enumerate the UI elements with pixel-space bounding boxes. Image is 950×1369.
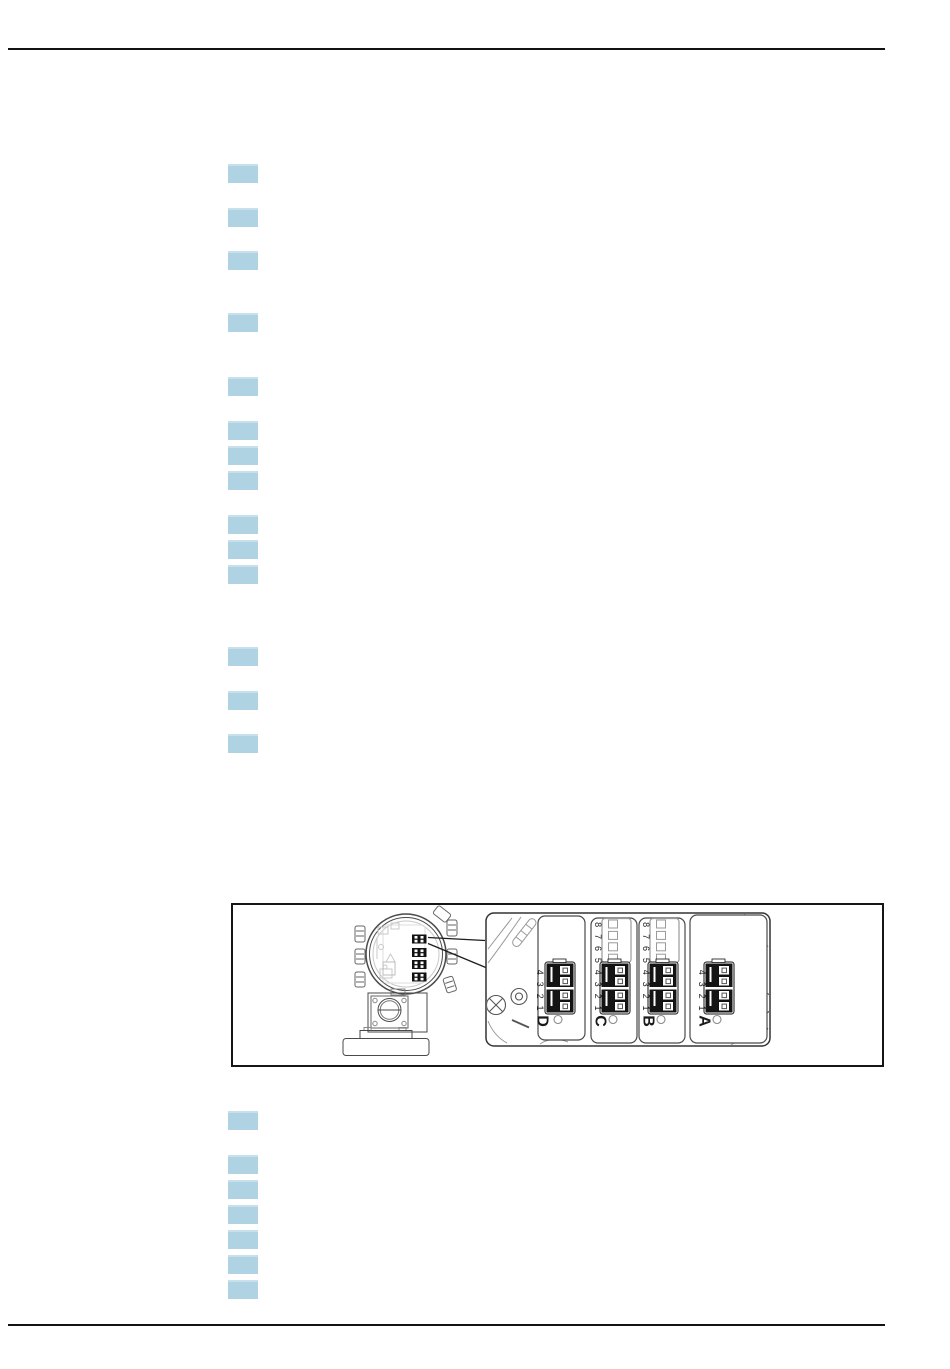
pin-number: 4 <box>697 970 707 975</box>
pin-number: 7 <box>641 934 651 939</box>
pin-number: 1 <box>697 1005 707 1010</box>
pin-number: 8 <box>641 922 651 927</box>
contact-window <box>560 1002 571 1012</box>
connector-split <box>547 987 574 990</box>
terminal-assignment-figure: 1234D12345678C12345678B1234A <box>231 903 884 1067</box>
section-label: A <box>696 1015 713 1027</box>
clamp-slot <box>710 967 712 982</box>
redacted-step-highlight <box>228 1155 258 1174</box>
pin-number: 2 <box>535 994 545 999</box>
pin-number: 1 <box>641 1005 651 1010</box>
pin-number: 6 <box>641 946 651 951</box>
contact-window <box>560 977 571 987</box>
connector-split <box>650 987 677 990</box>
socket-window <box>657 931 666 939</box>
housing-outer-circle <box>366 914 446 994</box>
contact-window <box>560 991 571 1001</box>
connector-split <box>602 987 629 990</box>
connector-split <box>706 987 733 990</box>
mini-connector-3 <box>412 960 427 969</box>
redacted-step-highlight <box>228 734 258 753</box>
contact-window <box>663 977 674 987</box>
terminal-section-B: 12345678B <box>639 918 685 1043</box>
manual-page: 1234D12345678C12345678B1234A <box>0 0 950 1369</box>
pin-number: 2 <box>697 994 707 999</box>
redacted-step-highlight <box>228 446 258 465</box>
redacted-step-highlight <box>228 540 258 559</box>
redacted-step-highlight <box>228 1255 258 1274</box>
mini-connector-1 <box>412 935 427 944</box>
redacted-step-highlight <box>228 1280 258 1299</box>
clamp-slot <box>551 991 553 1006</box>
contact-window <box>719 977 730 987</box>
mounting-pillar <box>343 989 429 1056</box>
redacted-step-highlight <box>228 471 258 490</box>
redacted-step-highlight <box>228 1111 258 1130</box>
clamp-slot <box>654 991 656 1006</box>
contact-window <box>719 966 730 976</box>
redacted-step-highlight <box>228 565 258 584</box>
pin-number: 4 <box>641 970 651 975</box>
pin-number: 7 <box>593 934 603 939</box>
redacted-step-highlight <box>228 1205 258 1224</box>
redacted-step-highlight <box>228 251 258 270</box>
contact-window <box>719 1002 730 1012</box>
socket-window <box>609 943 618 951</box>
contact-window <box>615 991 626 1001</box>
redacted-step-highlight <box>228 421 258 440</box>
section-label: D <box>534 1015 551 1027</box>
pin-number: 1 <box>593 1005 603 1010</box>
contact-window <box>663 1002 674 1012</box>
pin-number: 4 <box>593 970 603 975</box>
redacted-step-highlight <box>228 691 258 710</box>
header-rule <box>8 48 885 50</box>
redacted-step-highlight <box>228 164 258 183</box>
redacted-step-highlight <box>228 377 258 396</box>
terminal-sections-layer: 1234D12345678C12345678B1234A <box>534 915 768 1043</box>
contact-window <box>663 991 674 1001</box>
terminal-section-A: 1234A <box>690 915 767 1043</box>
contact-window <box>615 966 626 976</box>
socket-window <box>657 920 666 928</box>
section-label: C <box>592 1015 609 1027</box>
clamp-slot <box>654 967 656 982</box>
terminal-detail-panel: 1234D12345678C12345678B1234A <box>486 913 773 1046</box>
pin-number: 3 <box>641 982 651 987</box>
connector-tab <box>656 959 669 963</box>
contact-window <box>615 1002 626 1012</box>
mini-connector-4 <box>412 973 427 982</box>
connector-tab <box>608 959 621 963</box>
clamp-slot <box>606 967 608 982</box>
terminal-section-C: 12345678C <box>591 918 637 1043</box>
socket-window <box>657 943 666 951</box>
pin-number: 4 <box>535 970 545 975</box>
pin-number: 5 <box>593 958 603 963</box>
redacted-step-highlight <box>228 208 258 227</box>
contact-window <box>560 966 571 976</box>
transmitter-drawing <box>343 905 457 1055</box>
clamp-slot <box>606 991 608 1006</box>
pin-number: 3 <box>535 982 545 987</box>
pin-number: 6 <box>593 946 603 951</box>
contact-window <box>615 977 626 987</box>
mini-connectors <box>412 935 427 982</box>
connector-tab <box>553 959 566 963</box>
redacted-step-highlight <box>228 313 258 332</box>
housing-inner-circle <box>370 918 443 991</box>
section-label: B <box>640 1015 657 1027</box>
pin-number: 3 <box>697 982 707 987</box>
clamp-slot <box>710 991 712 1006</box>
redacted-step-highlight <box>228 647 258 666</box>
footer-rule <box>8 1324 885 1326</box>
terminal-section-D: 1234D <box>534 916 586 1040</box>
socket-window <box>609 920 618 928</box>
figure-svg: 1234D12345678C12345678B1234A <box>233 905 882 1065</box>
connector-tab <box>712 959 725 963</box>
pin-number: 2 <box>641 994 651 999</box>
contact-window <box>663 966 674 976</box>
socket-window <box>609 931 618 939</box>
redacted-step-highlight <box>228 1180 258 1199</box>
clamp-slot <box>551 967 553 982</box>
pin-number: 3 <box>593 982 603 987</box>
pin-number: 1 <box>535 1005 545 1010</box>
contact-window <box>719 991 730 1001</box>
pin-number: 8 <box>593 922 603 927</box>
redacted-step-highlight <box>228 515 258 534</box>
pin-number: 5 <box>641 958 651 963</box>
pin-number: 2 <box>593 994 603 999</box>
mini-connector-2 <box>412 948 427 957</box>
redacted-step-highlight <box>228 1230 258 1249</box>
